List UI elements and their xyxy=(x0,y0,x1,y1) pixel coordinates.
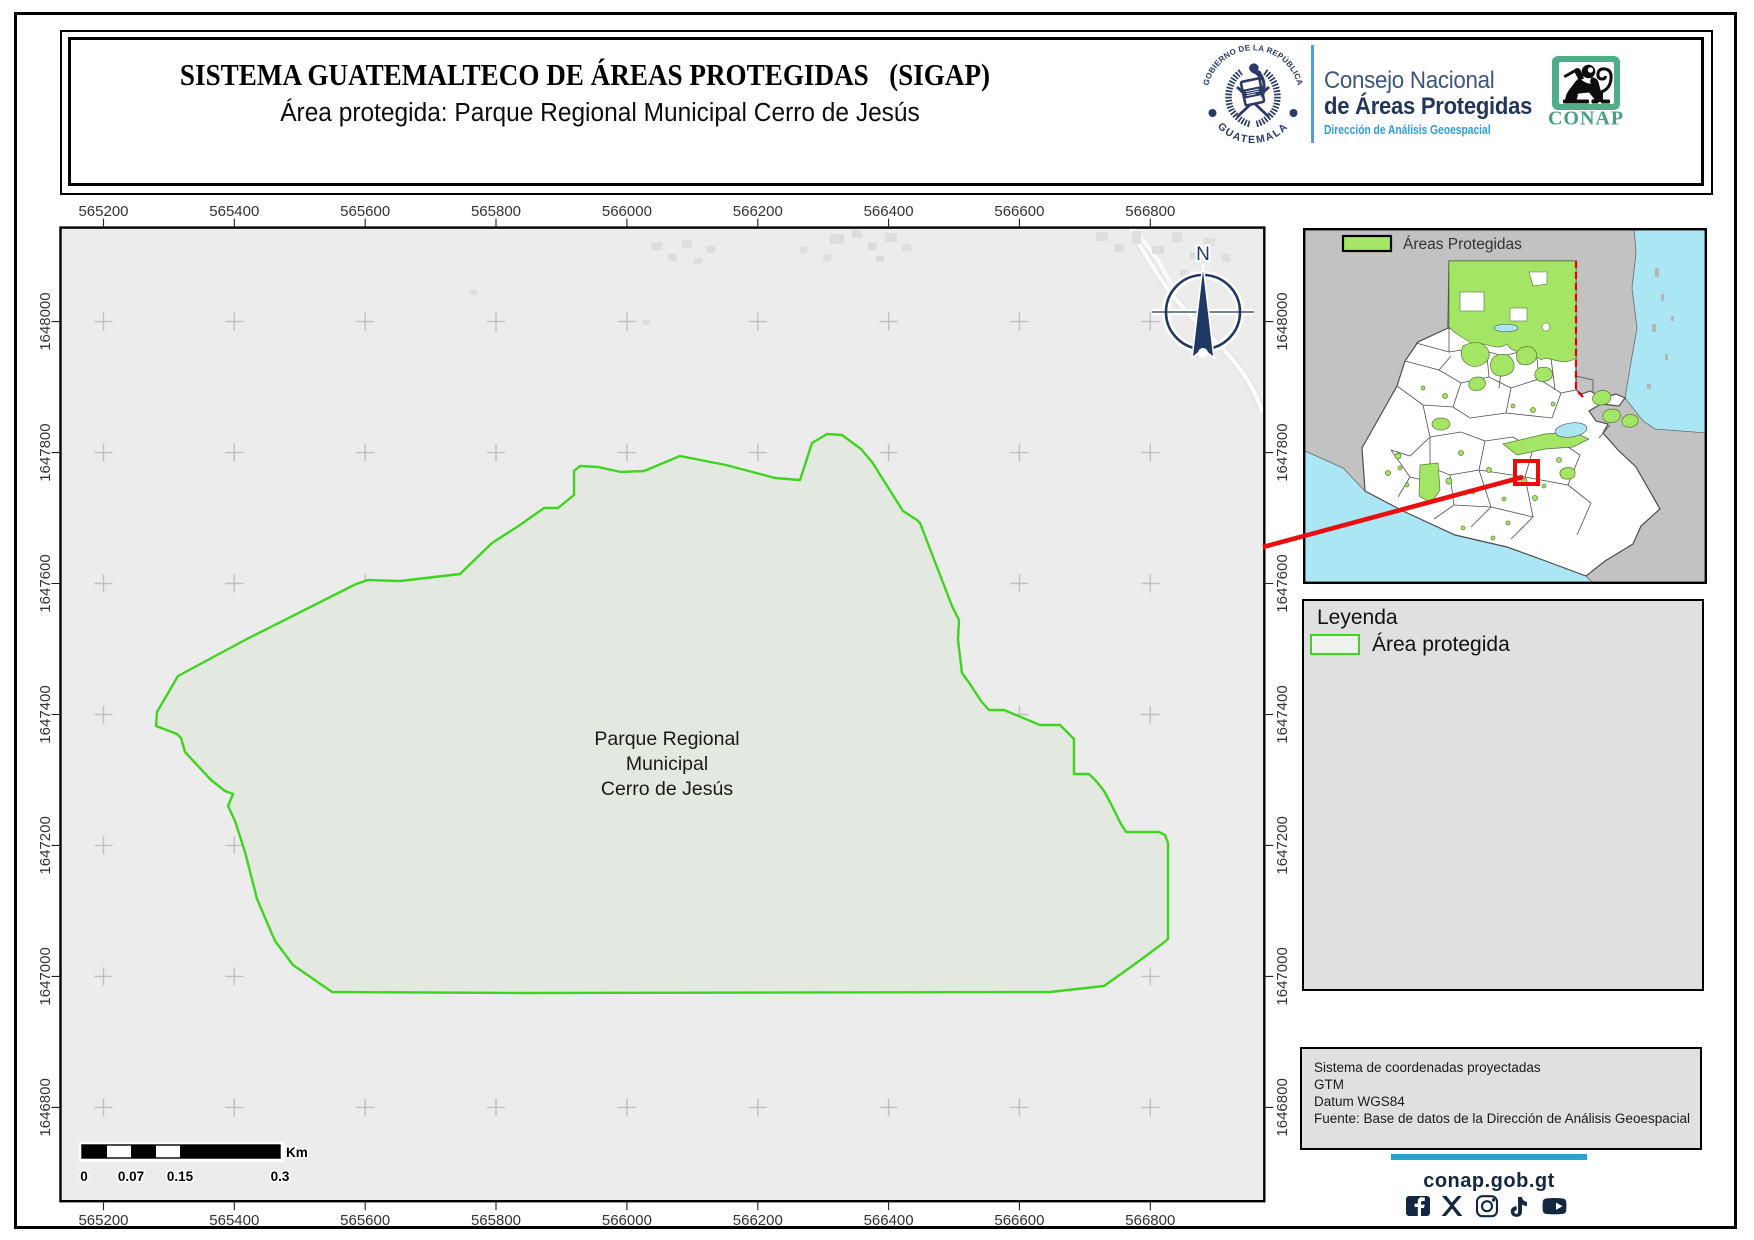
svg-text:1647000: 1647000 xyxy=(37,947,54,1005)
svg-text:0.3: 0.3 xyxy=(271,1169,290,1184)
svg-text:566200: 566200 xyxy=(733,203,783,220)
svg-text:N: N xyxy=(1196,244,1210,265)
svg-text:CONAP: CONAP xyxy=(1548,108,1624,130)
svg-text:1647200: 1647200 xyxy=(37,816,54,874)
svg-text:1646800: 1646800 xyxy=(1274,1078,1291,1136)
svg-text:565600: 565600 xyxy=(340,203,390,220)
svg-text:566200: 566200 xyxy=(733,1212,783,1229)
svg-text:GUATEMALA: GUATEMALA xyxy=(1215,120,1291,146)
svg-text:566800: 566800 xyxy=(1125,1212,1175,1229)
svg-text:0.07: 0.07 xyxy=(118,1169,144,1184)
svg-text:565400: 565400 xyxy=(209,203,259,220)
svg-text:Áreas Protegidas: Áreas Protegidas xyxy=(1403,236,1522,253)
svg-text:1647800: 1647800 xyxy=(37,423,54,481)
svg-text:0: 0 xyxy=(80,1169,88,1184)
svg-text:565800: 565800 xyxy=(471,203,521,220)
svg-text:566800: 566800 xyxy=(1125,203,1175,220)
svg-text:1647400: 1647400 xyxy=(1274,685,1291,743)
svg-text:566400: 566400 xyxy=(864,1212,914,1229)
svg-text:566000: 566000 xyxy=(602,203,652,220)
svg-text:1647600: 1647600 xyxy=(1274,554,1291,612)
svg-text:566600: 566600 xyxy=(994,1212,1044,1229)
svg-text:565400: 565400 xyxy=(209,1212,259,1229)
svg-text:Municipal: Municipal xyxy=(626,753,708,775)
svg-text:1646800: 1646800 xyxy=(37,1078,54,1136)
svg-text:565600: 565600 xyxy=(340,1212,390,1229)
svg-text:1647200: 1647200 xyxy=(1274,816,1291,874)
svg-text:Km: Km xyxy=(286,1145,308,1160)
svg-text:1648000: 1648000 xyxy=(37,292,54,350)
svg-text:565200: 565200 xyxy=(78,1212,128,1229)
svg-text:Cerro de Jesús: Cerro de Jesús xyxy=(601,778,733,800)
svg-text:Parque Regional: Parque Regional xyxy=(594,728,739,750)
svg-text:566600: 566600 xyxy=(994,203,1044,220)
svg-text:0.15: 0.15 xyxy=(167,1169,194,1184)
svg-text:1647000: 1647000 xyxy=(1274,947,1291,1005)
svg-text:566400: 566400 xyxy=(864,203,914,220)
svg-text:565800: 565800 xyxy=(471,1212,521,1229)
svg-text:566000: 566000 xyxy=(602,1212,652,1229)
svg-text:565200: 565200 xyxy=(78,203,128,220)
svg-text:1647400: 1647400 xyxy=(37,685,54,743)
svg-text:1647600: 1647600 xyxy=(37,554,54,612)
svg-text:1647800: 1647800 xyxy=(1274,423,1291,481)
svg-text:1648000: 1648000 xyxy=(1274,292,1291,350)
